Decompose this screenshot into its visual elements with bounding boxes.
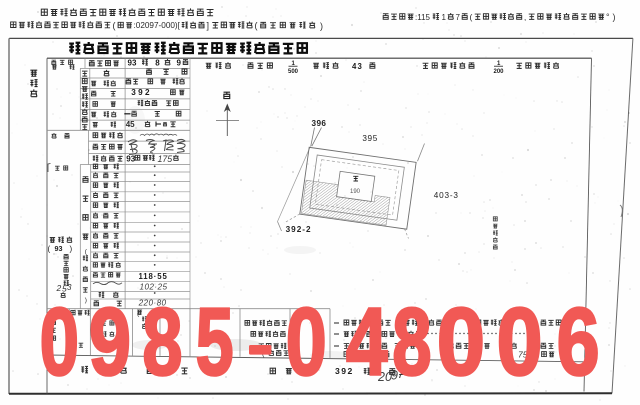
svg-text:200: 200 (494, 69, 505, 75)
svg-text::115: :115 (415, 13, 431, 22)
svg-text:190: 190 (350, 189, 361, 195)
svg-text:395: 395 (362, 134, 377, 143)
svg-text:0: 0 (286, 289, 327, 396)
svg-text:(: ( (470, 12, 473, 22)
svg-text:0: 0 (40, 288, 79, 395)
svg-text:): ) (85, 297, 87, 304)
svg-text:,: , (524, 13, 526, 22)
svg-text:3 9 2: 3 9 2 (131, 88, 150, 97)
svg-text:9: 9 (177, 59, 182, 68)
svg-text:93: 93 (128, 59, 137, 68)
svg-text:1: 1 (442, 13, 447, 22)
svg-text:6: 6 (557, 289, 600, 396)
svg-text:8: 8 (155, 59, 160, 68)
svg-text:8: 8 (142, 287, 182, 394)
svg-text:8: 8 (392, 288, 431, 395)
svg-text:500: 500 (288, 69, 299, 75)
svg-text:43: 43 (352, 62, 363, 71)
svg-text:7: 7 (456, 13, 461, 22)
svg-text:(: ( (48, 245, 51, 254)
svg-text:(: ( (255, 21, 258, 31)
svg-text:0: 0 (497, 288, 543, 395)
svg-text:°: ° (606, 12, 610, 22)
svg-text:): ) (70, 245, 73, 254)
svg-text:): ) (320, 21, 323, 31)
svg-text:4: 4 (346, 289, 388, 396)
svg-text:93: 93 (126, 154, 135, 163)
svg-text:403-3: 403-3 (434, 191, 459, 200)
svg-text:118·55: 118·55 (139, 272, 168, 281)
svg-text:5: 5 (196, 288, 234, 395)
svg-text:392-2: 392-2 (286, 225, 312, 234)
svg-text:]: ] (207, 21, 210, 31)
svg-text:9: 9 (89, 289, 131, 396)
svg-text:0: 0 (437, 289, 485, 396)
svg-text:175: 175 (158, 154, 173, 164)
svg-text:): ) (613, 12, 616, 22)
svg-text:93: 93 (55, 244, 63, 253)
svg-text:(: ( (113, 21, 116, 31)
svg-text::02097-000)[: :02097-000)[ (134, 21, 181, 30)
svg-text:396: 396 (312, 119, 327, 128)
